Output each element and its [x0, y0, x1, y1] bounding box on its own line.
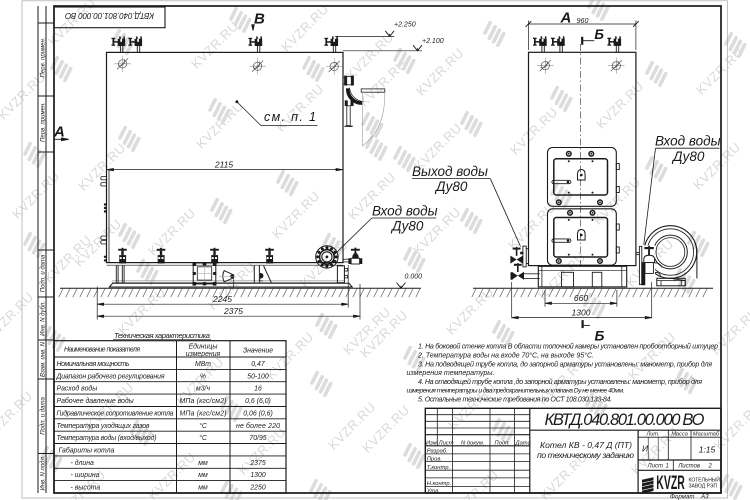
svg-text:мм: мм	[198, 472, 208, 479]
svg-text:0,06 (0,6): 0,06 (0,6)	[243, 410, 273, 417]
svg-text:мм: мм	[198, 485, 208, 492]
svg-text:Ду80: Ду80	[434, 179, 468, 194]
svg-text:Лит.: Лит.	[645, 431, 659, 437]
svg-text:Утв.: Утв.	[426, 488, 440, 494]
svg-text:960: 960	[577, 18, 589, 25]
svg-text:Формат: Формат	[670, 494, 695, 500]
svg-text:Рабочее давление воды: Рабочее давление воды	[57, 397, 134, 405]
svg-text:мм: мм	[198, 460, 208, 467]
svg-text:Техническая характеристика: Техническая характеристика	[114, 331, 210, 340]
svg-text:КВТД.040.801.00.000 ВО: КВТД.040.801.00.000 ВО	[65, 11, 154, 20]
svg-text:Вход воды: Вход воды	[655, 134, 721, 149]
svg-text:Подп.: Подп.	[495, 440, 510, 446]
svg-text:Температура уходящих газов: Температура уходящих газов	[57, 422, 150, 430]
svg-text:МПа (кгс/см2): МПа (кгс/см2)	[180, 410, 227, 417]
svg-text:Расход воды: Расход воды	[57, 385, 98, 393]
svg-text:Лист: Лист	[647, 463, 663, 469]
svg-text:1: 1	[666, 463, 669, 469]
svg-text:Перв. примен.: Перв. примен.	[41, 102, 47, 142]
svg-text:3. На подводящей трубе котла,: 3. На подводящей трубе котла, до запорно…	[418, 360, 712, 368]
svg-text:2: 2	[708, 463, 713, 469]
svg-text:Масштаб: Масштаб	[693, 431, 720, 437]
svg-text:0.000: 0.000	[405, 273, 423, 280]
svg-text:А: А	[560, 9, 572, 26]
svg-text:И: И	[642, 444, 649, 454]
svg-text:1. На боковой стенке котла В: 1. На боковой стенке котла В области топ…	[418, 343, 718, 351]
svg-text:660: 660	[574, 293, 588, 303]
svg-text:Взам. инв. N: Взам. инв. N	[41, 341, 47, 377]
svg-text:4. На отводящей трубе котла ,: 4. На отводящей трубе котла ,до запорной…	[418, 378, 702, 386]
svg-text:1300: 1300	[572, 307, 591, 317]
svg-text:+2.250: +2.250	[394, 22, 416, 29]
svg-text:Н.контр.: Н.контр.	[427, 481, 452, 487]
svg-text:%: %	[200, 373, 206, 380]
svg-text:- высота: - высота	[71, 485, 101, 492]
svg-text:+2.100: +2.100	[422, 38, 444, 45]
svg-text:- ширина: - ширина	[71, 472, 100, 479]
svg-text:Выход воды: Выход воды	[412, 164, 488, 179]
svg-text:Т.контр.: Т.контр.	[427, 465, 450, 471]
svg-text:Дата: Дата	[515, 440, 532, 446]
svg-text:0,6 (6,0): 0,6 (6,0)	[245, 398, 271, 405]
svg-text:70/95: 70/95	[249, 435, 266, 442]
svg-text:Перв. примен.: Перв. примен.	[41, 38, 47, 78]
svg-text:Подп. и дата: Подп. и дата	[41, 254, 47, 292]
svg-text:м3/ч: м3/ч	[196, 386, 210, 393]
svg-text:2245: 2245	[212, 294, 232, 304]
svg-text:°С: °С	[199, 422, 208, 430]
svg-text:Листов: Листов	[677, 463, 700, 469]
svg-text:Пров.: Пров.	[427, 456, 442, 462]
svg-text:Диапазон рабочего регулировани: Диапазон рабочего регулирования	[56, 372, 165, 380]
svg-text:KVZR: KVZR	[656, 473, 685, 494]
svg-text:°С: °С	[199, 434, 208, 442]
svg-text:Гидравлическое сопротивление к: Гидравлическое сопротивление котла	[57, 409, 174, 417]
svg-text:КОТЕЛЬНЫЙ: КОТЕЛЬНЫЙ	[689, 476, 721, 484]
svg-text:Подп. и дата: Подп. и дата	[41, 397, 47, 435]
svg-text:Разраб.: Разраб.	[427, 449, 448, 455]
svg-text:МВт: МВт	[195, 361, 211, 368]
svg-text:Инв. N дубл.: Инв. N дубл.	[41, 301, 47, 336]
svg-text:1:15: 1:15	[699, 445, 716, 455]
svg-text:Температура воды (вход/выход): Температура воды (вход/выход)	[57, 434, 157, 442]
svg-text:измерения температуры и два пр: измерения температуры и два предохраните…	[407, 387, 625, 395]
svg-text:Ду80: Ду80	[671, 149, 705, 164]
svg-text:Изм.: Изм.	[426, 440, 438, 446]
svg-text:Наименование показателя: Наименование показателя	[64, 347, 140, 354]
svg-text:1300: 1300	[250, 472, 265, 479]
svg-text:Ду80: Ду80	[390, 219, 424, 234]
svg-text:Б: Б	[595, 327, 605, 343]
svg-text:2115: 2115	[214, 159, 234, 169]
svg-text:16: 16	[254, 386, 262, 393]
svg-text:N докум.: N докум.	[461, 440, 484, 446]
svg-text:Лист: Лист	[438, 440, 454, 446]
svg-text:Значение: Значение	[243, 348, 273, 355]
svg-text:А3: А3	[700, 494, 709, 500]
svg-text:2250: 2250	[249, 485, 265, 492]
svg-text:не более 220: не более 220	[236, 422, 280, 430]
svg-text:Единицы: Единицы	[189, 343, 218, 351]
svg-text:Инв. N подл.: Инв. N подл.	[41, 455, 47, 490]
svg-text:Вход воды: Вход воды	[372, 204, 438, 219]
svg-text:0,47: 0,47	[251, 361, 266, 368]
svg-text:Масса: Масса	[671, 431, 688, 437]
svg-text:5. Остальные технические треб: 5. Остальные технические требования по О…	[418, 396, 612, 404]
svg-text:измерения: измерения	[186, 351, 221, 358]
svg-text:МПа (кгс/см2): МПа (кгс/см2)	[180, 398, 227, 405]
svg-text:2. Температура воды на входе: 2. Температура воды на входе 70°С, на вы…	[417, 352, 594, 360]
svg-text:50-100: 50-100	[247, 373, 269, 380]
svg-text:2375: 2375	[223, 306, 243, 316]
svg-text:Б: Б	[594, 27, 604, 42]
svg-text:2375: 2375	[249, 460, 265, 467]
svg-text:- длина: - длина	[71, 459, 95, 467]
svg-text:Габариты котла: Габариты котла	[59, 447, 115, 455]
svg-text:ЗАВОД РЭП: ЗАВОД РЭП	[689, 484, 718, 490]
svg-text:Номинальная мощность: Номинальная мощность	[57, 361, 130, 368]
svg-text:измерения температуры.: измерения температуры.	[407, 369, 495, 377]
svg-text:Котел КВ - 0,47 Д (ПТ): Котел КВ - 0,47 Д (ПТ)	[540, 440, 632, 450]
svg-text:КВТД.040.801.00.000 ВО: КВТД.040.801.00.000 ВО	[545, 411, 705, 429]
svg-text:по техническому заданию: по техническому заданию	[537, 450, 635, 460]
svg-text:В: В	[254, 10, 265, 27]
